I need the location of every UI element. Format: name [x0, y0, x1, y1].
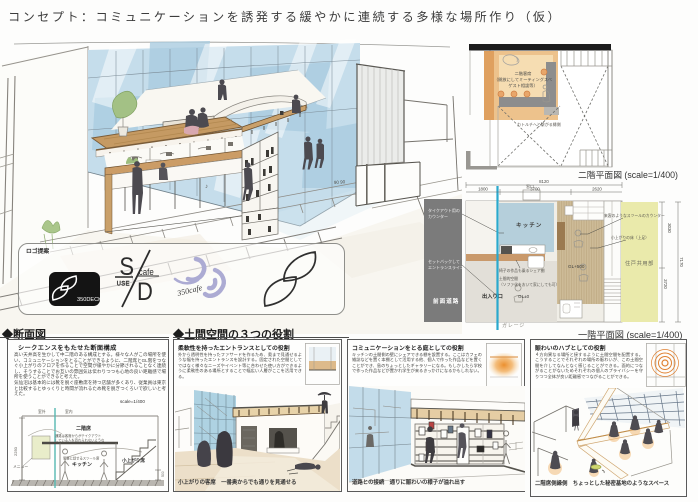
svg-text:（開放にしてミーティングスペ: （開放にしてミーティングスペ	[494, 76, 552, 83]
svg-text:している人を恐れられないような: している人を恐れられないような	[55, 438, 105, 443]
svg-text:セットバックして: セットバックして	[428, 258, 460, 264]
svg-text:90 90: 90 90	[334, 179, 346, 185]
svg-text:前面道路: 前面道路	[433, 297, 459, 305]
svg-text:350cafe: 350cafe	[175, 283, 203, 298]
svg-text:7170: 7170	[679, 257, 684, 267]
svg-text:3030: 3030	[667, 223, 672, 233]
svg-text:500: 500	[161, 471, 165, 477]
svg-text:キッチン: キッチン	[72, 462, 92, 468]
svg-text:（ソファ化をおいて家にしても可）: （ソファ化をおいて家にしても可）	[499, 282, 559, 287]
svg-text:住戸共用部: 住戸共用部	[625, 259, 654, 267]
svg-text:二階客席: 二階客席	[515, 70, 532, 77]
svg-text:タイクアウト用の: タイクアウト用の	[428, 207, 460, 213]
svg-text:S: S	[119, 253, 134, 281]
svg-text:カウンター: カウンター	[428, 213, 448, 219]
svg-text:D: D	[137, 278, 153, 306]
svg-text:ガレージ: ガレージ	[502, 322, 525, 329]
svg-text:メニュー: メニュー	[13, 465, 28, 469]
svg-text:室外: 室外	[38, 409, 46, 414]
svg-text:二階席: 二階席	[76, 425, 91, 432]
svg-text:8120: 8120	[539, 179, 549, 184]
svg-text:小上がり席: 小上がり席	[122, 457, 145, 464]
svg-text:3720: 3720	[663, 279, 668, 289]
svg-text:USE: USE	[117, 280, 130, 287]
svg-text:来客のようなスツールのカウンター: 来客のようなスツールのカウンター	[604, 213, 665, 218]
svg-text:2620: 2620	[592, 187, 602, 192]
svg-text:小上がりの床（上足）: 小上がりの床（上足）	[611, 235, 649, 240]
svg-text:GL±0: GL±0	[518, 294, 530, 299]
svg-text:1800: 1800	[478, 187, 488, 192]
svg-text:気軽に話せるスツール席: 気軽に話せるスツール席	[63, 456, 100, 461]
svg-text:室内: 室内	[65, 409, 73, 414]
svg-text:キッチン: キッチン	[516, 222, 542, 229]
svg-text:ゲスト相談等）: ゲスト相談等）	[508, 82, 537, 89]
svg-text:カトルチへと繋がる縁側: カトルチへと繋がる縁側	[517, 121, 561, 127]
svg-text:出入り口: 出入り口	[482, 292, 503, 300]
svg-text:2250: 2250	[13, 446, 18, 456]
svg-text:GL+500: GL+500	[568, 264, 585, 269]
svg-text:椅子の作品も乗るシェア棚: 椅子の作品も乗るシェア棚	[499, 268, 545, 273]
svg-text:エントランスライン: エントランスライン	[428, 264, 464, 270]
svg-text:350DECK: 350DECK	[77, 297, 100, 303]
svg-text:土間的空間: 土間的空間	[499, 276, 518, 281]
svg-text:♪: ♪	[205, 184, 208, 190]
svg-text:3700: 3700	[530, 187, 540, 192]
